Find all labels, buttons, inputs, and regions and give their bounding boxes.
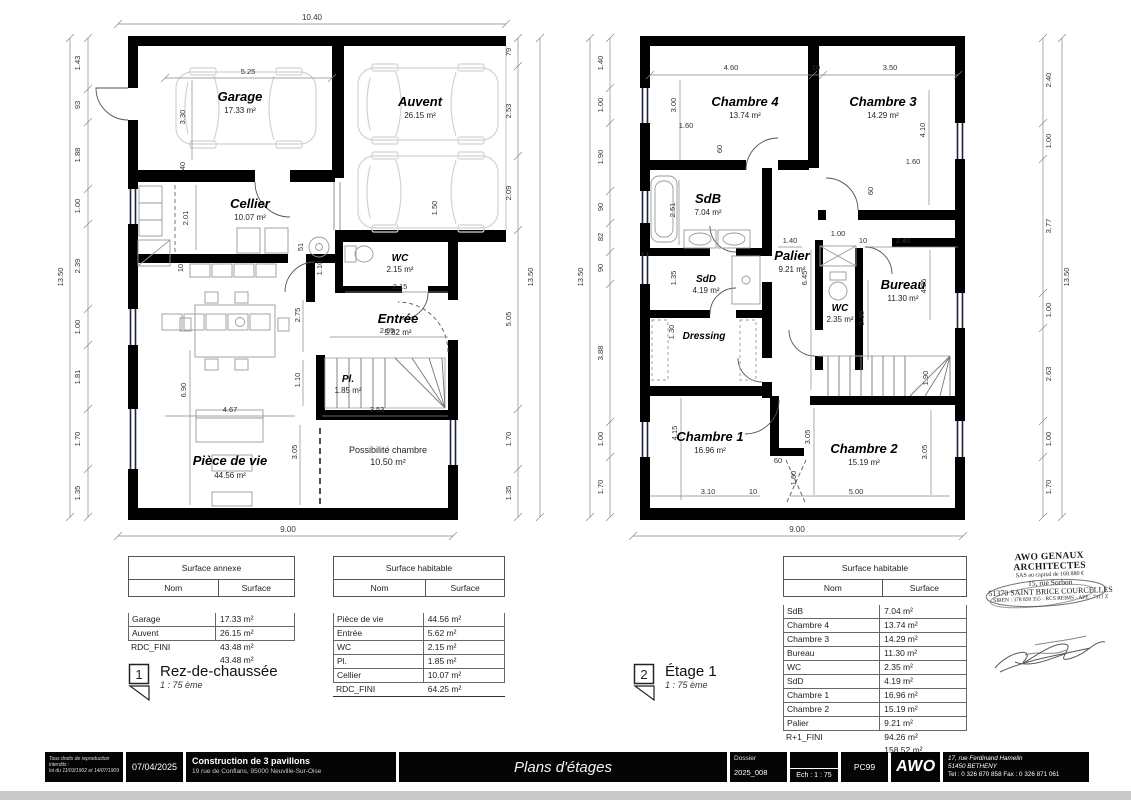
etage-fixtures <box>651 176 856 380</box>
sheet-bottom-strip <box>0 791 1131 800</box>
table-rows: Pièce de vie44.56 m²Entrée5.62 m²WC2.15 … <box>333 613 505 683</box>
room-auvent-area: 26.15 m² <box>404 111 436 120</box>
svg-text:3.00: 3.00 <box>669 98 678 113</box>
svg-text:1.60: 1.60 <box>906 157 921 166</box>
svg-text:13.50: 13.50 <box>526 268 535 287</box>
room-sdb-area: 7.04 m² <box>694 208 721 217</box>
svg-text:82: 82 <box>596 233 605 241</box>
footer-copyright: Tous droits de reproduction interdits : … <box>45 752 123 782</box>
table-row: WC2.15 m² <box>333 641 505 655</box>
svg-text:3.10: 3.10 <box>701 487 716 496</box>
scale-value: Ech : 1 : 75 <box>790 769 838 782</box>
svg-text:1.00: 1.00 <box>1044 134 1053 149</box>
table-surface-annexe: Surface annexe Nom Surface Garage17.33 m… <box>128 556 295 667</box>
svg-text:2.09: 2.09 <box>504 186 513 201</box>
room-piece-de-vie-area: 44.56 m² <box>214 471 246 480</box>
svg-text:13.50: 13.50 <box>56 268 65 287</box>
room-chambre4: Chambre 4 <box>711 94 779 109</box>
address-line2: 51450 BETHENY <box>948 763 1089 771</box>
room-dressing: Dressing <box>683 331 726 342</box>
svg-text:5.25: 5.25 <box>241 67 256 76</box>
etage-dimension-lines <box>586 34 1066 540</box>
room-chambre2: Chambre 2 <box>830 441 898 456</box>
etage-dim-labels: 9.00 13.50 13.50 1.40 1.00 1.90 90 82 90… <box>576 56 1071 534</box>
table-row: Bureau11.30 m² <box>783 647 967 661</box>
room-garage: Garage <box>218 89 263 104</box>
svg-text:2.53: 2.53 <box>504 104 513 119</box>
svg-text:3.53: 3.53 <box>370 405 385 414</box>
table-row: WC2.35 m² <box>783 661 967 675</box>
room-wc-etage: WC <box>832 303 849 314</box>
floor-marker-rdc: 1 Rez-de-chaussée 1 : 75 ème <box>128 663 278 703</box>
svg-text:1.70: 1.70 <box>73 432 82 447</box>
floorplan-rdc: Garage 17.33 m² Auvent 26.15 m² Cellier … <box>56 13 544 540</box>
svg-text:2.75: 2.75 <box>293 308 302 323</box>
scale-empty-cell <box>790 752 838 769</box>
table-row: Chambre 215.19 m² <box>783 703 967 717</box>
col-surface: Surface <box>219 580 294 596</box>
dossier-label: Dossier <box>734 755 787 762</box>
svg-text:6.45: 6.45 <box>800 271 809 286</box>
table-row: Cellier10.07 m² <box>333 669 505 683</box>
room-chambre2-area: 15.19 m² <box>848 458 880 467</box>
room-cellier-area: 10.07 m² <box>234 213 266 222</box>
rdc-dim-labels: 10.40 9.00 13.50 13.50 1.43 93 1.88 1.00… <box>56 13 535 534</box>
copyright-line2: loi du 11/03/1902 et 14/07/1909 <box>49 768 121 774</box>
svg-text:3.05: 3.05 <box>920 445 929 460</box>
svg-text:1.40: 1.40 <box>596 56 605 71</box>
svg-text:1.00: 1.00 <box>1044 303 1053 318</box>
floor-scale: 1 : 75 ème <box>160 680 278 690</box>
footer-architect-address: 17, rue Ferdinand Hamelin 51450 BETHENY … <box>943 752 1089 782</box>
room-garage-area: 17.33 m² <box>224 106 256 115</box>
room-chambre1: Chambre 1 <box>676 429 743 444</box>
svg-text:1: 1 <box>135 667 142 682</box>
svg-text:2.39: 2.39 <box>73 259 82 274</box>
svg-text:60: 60 <box>715 145 724 153</box>
svg-text:3.30: 3.30 <box>178 110 187 125</box>
room-chambre3-area: 14.29 m² <box>867 111 899 120</box>
floor-scale: 1 : 75 ème <box>665 680 717 690</box>
table-row: SdD4.19 m² <box>783 675 967 689</box>
table-rows: Garage17.33 m²Auvent26.15 m² <box>128 613 295 641</box>
project-address: 19 rue de Conflans, 95000 Neuville-Sur-O… <box>192 768 396 775</box>
room-chambre1-area: 16.96 m² <box>694 446 726 455</box>
dossier-number: 2025_008 <box>734 768 787 777</box>
svg-text:60: 60 <box>774 456 782 465</box>
svg-text:3.50: 3.50 <box>883 63 898 72</box>
svg-text:10.40: 10.40 <box>302 13 323 22</box>
room-wc-etage-area: 2.35 m² <box>826 315 853 324</box>
svg-text:1.60: 1.60 <box>679 121 694 130</box>
floor-title: Rez-de-chaussée <box>160 663 278 680</box>
svg-text:4.25: 4.25 <box>919 279 928 294</box>
architect-stamp: AWO GENAUX ARCHITECTES SAS au capital de… <box>979 550 1121 605</box>
room-placard: Pl. <box>342 374 354 385</box>
svg-text:10: 10 <box>812 63 820 72</box>
svg-text:3.88: 3.88 <box>596 346 605 361</box>
svg-text:1.00: 1.00 <box>831 229 846 238</box>
room-chambre4-area: 13.74 m² <box>729 111 761 120</box>
svg-text:1.81: 1.81 <box>73 370 82 385</box>
svg-text:4.60: 4.60 <box>724 63 739 72</box>
footer-project: Construction de 3 pavillons 19 rue de Co… <box>186 752 396 782</box>
svg-text:10: 10 <box>859 236 867 245</box>
col-surface: Surface <box>426 580 504 596</box>
svg-text:1.43: 1.43 <box>73 56 82 71</box>
svg-text:2: 2 <box>640 667 647 682</box>
table-row: Pièce de vie44.56 m² <box>333 613 505 627</box>
table-surface-habitable-rdc: Surface habitable Nom Surface Pièce de v… <box>333 556 505 697</box>
table-row: Chambre 413.74 m² <box>783 619 967 633</box>
table-row: Palier9.21 m² <box>783 717 967 731</box>
svg-text:93: 93 <box>73 101 82 109</box>
svg-text:1.50: 1.50 <box>430 201 439 216</box>
floor-marker-icon: 2 <box>633 663 659 703</box>
table-title: Surface annexe <box>128 556 295 580</box>
svg-text:2.35: 2.35 <box>857 311 866 326</box>
floor-title: Étage 1 <box>665 663 717 680</box>
col-surface: Surface <box>883 580 966 596</box>
svg-text:1.70: 1.70 <box>596 480 605 495</box>
svg-text:1.90: 1.90 <box>596 150 605 165</box>
svg-text:13.50: 13.50 <box>1062 268 1071 287</box>
etage-stairs <box>818 356 950 396</box>
room-chambre3: Chambre 3 <box>849 94 917 109</box>
table-row: Auvent26.15 m² <box>128 627 295 641</box>
svg-text:2.51: 2.51 <box>668 203 677 218</box>
address-line3: Tel : 0 326 870 858 Fax : 0 326 871 061 <box>948 771 1089 779</box>
col-nom: Nom <box>784 580 883 596</box>
room-bureau-area: 11.30 m² <box>888 294 919 303</box>
room-sdd-area: 4.19 m² <box>692 286 719 295</box>
svg-text:13.50: 13.50 <box>576 268 585 287</box>
svg-text:1.60: 1.60 <box>789 471 798 486</box>
svg-text:1.10: 1.10 <box>293 373 302 388</box>
svg-text:1.00: 1.00 <box>73 199 82 214</box>
room-auvent: Auvent <box>397 94 443 109</box>
table-row: SdB7.04 m² <box>783 605 967 619</box>
svg-text:1.10: 1.10 <box>315 261 324 276</box>
svg-text:40: 40 <box>178 162 187 170</box>
svg-text:1.35: 1.35 <box>504 486 513 501</box>
col-nom: Nom <box>129 580 219 596</box>
svg-text:2.01: 2.01 <box>181 211 190 226</box>
svg-text:1.00: 1.00 <box>596 432 605 447</box>
address-line1: 17, rue Ferdinand Hamelin <box>948 755 1089 763</box>
svg-text:3.05: 3.05 <box>290 445 299 460</box>
total-row: RDC_FINI43.48 m² <box>128 641 295 654</box>
rdc-doors <box>96 46 506 352</box>
drawing-sheet: Garage 17.33 m² Auvent 26.15 m² Cellier … <box>0 0 1131 800</box>
svg-text:2.95: 2.95 <box>380 326 395 335</box>
room-placard-area: 1.85 m² <box>334 386 361 395</box>
total-row: RDC_FINI64.25 m² <box>333 683 505 696</box>
svg-text:1.00: 1.00 <box>1044 432 1053 447</box>
room-entree: Entrée <box>378 311 418 326</box>
svg-text:1.70: 1.70 <box>1044 480 1053 495</box>
svg-text:1.88: 1.88 <box>73 148 82 163</box>
table-row: Entrée5.62 m² <box>333 627 505 641</box>
svg-text:1.40: 1.40 <box>783 236 798 245</box>
svg-text:90: 90 <box>596 264 605 272</box>
svg-text:3.77: 3.77 <box>1044 219 1053 234</box>
svg-text:5.05: 5.05 <box>504 312 513 327</box>
table-header-row: Nom Surface <box>128 580 295 597</box>
svg-text:2.15: 2.15 <box>393 282 408 291</box>
room-piece-de-vie: Pièce de vie <box>193 453 267 468</box>
svg-text:1.30: 1.30 <box>667 325 676 340</box>
room-sdd: SdD <box>696 274 716 285</box>
awo-logo: AWO <box>891 752 940 782</box>
room-possibilite-area: 10.50 m² <box>370 457 406 467</box>
room-sdb: SdB <box>695 191 721 206</box>
col-nom: Nom <box>334 580 426 596</box>
svg-text:79: 79 <box>504 48 513 56</box>
svg-text:9.00: 9.00 <box>789 525 805 534</box>
room-wc: WC <box>392 253 409 264</box>
floorplan-etage: Chambre 4 13.74 m² Chambre 3 14.29 m² Sd… <box>576 34 1071 540</box>
table-surface-habitable-etage: Surface habitable Nom Surface SdB7.04 m²… <box>783 556 967 757</box>
svg-text:3.05: 3.05 <box>803 430 812 445</box>
floor-marker-icon: 1 <box>128 663 154 703</box>
svg-text:2.63: 2.63 <box>1044 367 1053 382</box>
floor-marker-etage: 2 Étage 1 1 : 75 ème <box>633 663 717 703</box>
footer-code: PC99 <box>841 752 888 782</box>
svg-text:10: 10 <box>176 264 185 272</box>
total-row: R+1_FINI94.26 m² <box>783 731 967 744</box>
svg-text:1.35: 1.35 <box>669 271 678 286</box>
footer-dossier: Dossier 2025_008 <box>730 752 787 782</box>
room-cellier: Cellier <box>230 196 271 211</box>
svg-text:4.67: 4.67 <box>223 405 238 414</box>
room-possibilite: Possibilité chambre <box>349 445 427 455</box>
svg-text:51: 51 <box>296 243 305 251</box>
footer-sheet-title: Plans d'étages <box>399 752 727 782</box>
svg-text:1.00: 1.00 <box>73 320 82 335</box>
svg-text:4.10: 4.10 <box>918 123 927 138</box>
footer-date: 07/04/2025 <box>126 752 183 782</box>
table-row: Garage17.33 m² <box>128 613 295 627</box>
svg-text:1.35: 1.35 <box>73 486 82 501</box>
svg-text:1.00: 1.00 <box>596 98 605 113</box>
svg-text:2.40: 2.40 <box>1044 73 1053 88</box>
table-title: Surface habitable <box>783 556 967 580</box>
footer-scale: Ech : 1 : 75 <box>790 752 838 782</box>
table-row: Chambre 116.96 m² <box>783 689 967 703</box>
svg-text:60: 60 <box>866 187 875 195</box>
copyright-line1: Tous droits de reproduction interdits : <box>49 756 121 768</box>
svg-text:9.00: 9.00 <box>280 525 296 534</box>
table-row: Pl.1.85 m² <box>333 655 505 669</box>
svg-text:6.90: 6.90 <box>179 383 188 398</box>
room-palier: Palier <box>774 248 810 263</box>
project-title: Construction de 3 pavillons <box>192 756 396 766</box>
table-rows: SdB7.04 m²Chambre 413.74 m²Chambre 314.2… <box>783 605 967 731</box>
table-totals: RDC_FINI64.25 m² <box>333 683 505 697</box>
svg-text:5.00: 5.00 <box>849 487 864 496</box>
table-title: Surface habitable <box>333 556 505 580</box>
room-wc-area: 2.15 m² <box>386 265 413 274</box>
table-row: Chambre 314.29 m² <box>783 633 967 647</box>
table-header-row: Nom Surface <box>783 580 967 597</box>
table-header-row: Nom Surface <box>333 580 505 597</box>
svg-text:4.15: 4.15 <box>670 426 679 441</box>
svg-text:90: 90 <box>596 203 605 211</box>
svg-text:1.70: 1.70 <box>504 432 513 447</box>
svg-text:1.90: 1.90 <box>921 371 930 386</box>
svg-text:2.40: 2.40 <box>896 236 911 245</box>
svg-text:10: 10 <box>749 487 757 496</box>
